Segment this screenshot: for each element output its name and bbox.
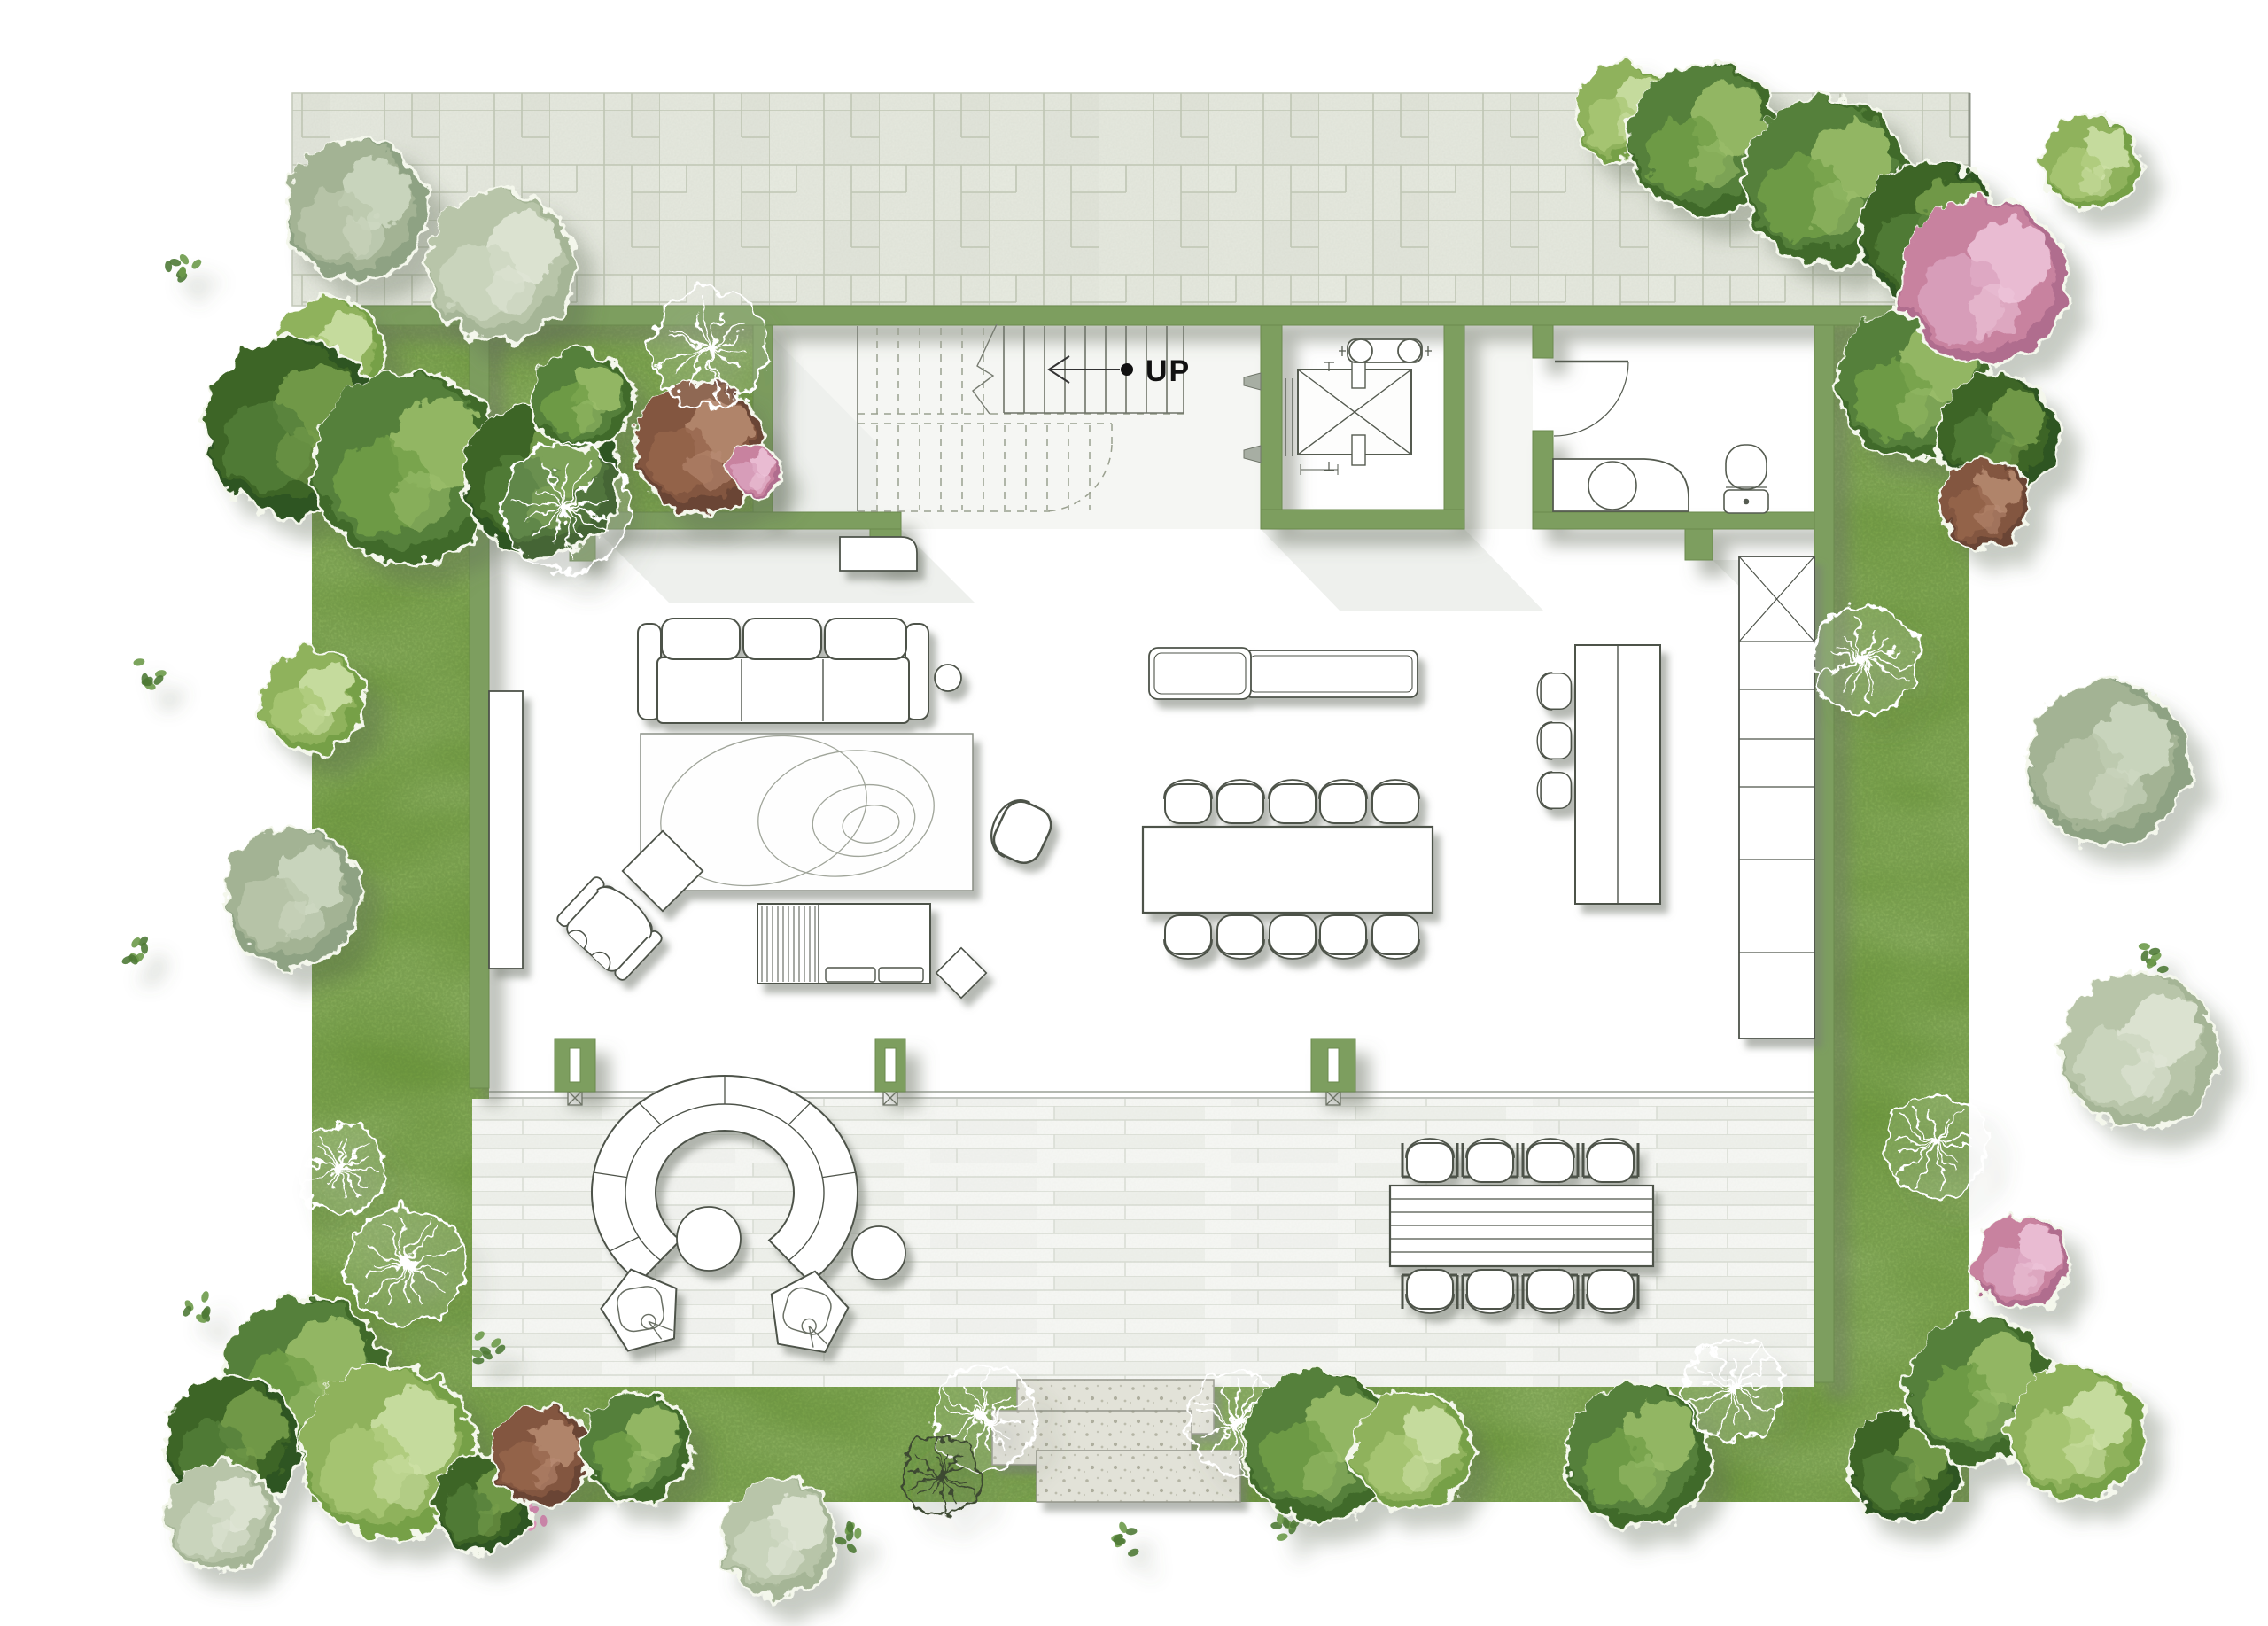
elevator-south-wall: [1261, 510, 1464, 529]
bathroom-west-wall: [1533, 325, 1553, 358]
leaf-sprig: [133, 657, 167, 691]
sofa-back-cushion: [743, 619, 821, 659]
leaf-sprig: [182, 1290, 213, 1325]
column-marker: [1326, 1091, 1340, 1105]
column-marker: [883, 1091, 897, 1105]
chair: [1216, 780, 1264, 823]
tree-canopy: [492, 1407, 589, 1505]
chair: [1269, 780, 1317, 823]
coffee-table: [852, 1226, 905, 1280]
window-bench: [489, 691, 523, 969]
east-wall: [1814, 325, 1834, 1382]
wall-stub: [1685, 529, 1713, 560]
site-plan-canvas: UP: [0, 0, 2268, 1626]
tree-canopy: [728, 445, 781, 498]
leaf-sprig: [2139, 943, 2170, 974]
tree-canopy: [2010, 1366, 2145, 1501]
tree-symbol: [650, 290, 767, 407]
chair: [1463, 1270, 1518, 1313]
sofa: [638, 619, 928, 723]
chair: [1216, 915, 1264, 959]
tree-canopy: [1940, 459, 2029, 548]
side-table: [935, 665, 961, 691]
sofa-back-cushion: [662, 619, 740, 659]
tree-symbol: [1884, 1093, 1987, 1196]
entry-bench: [840, 537, 917, 571]
courtyard-south-wall: [595, 512, 901, 529]
coffee-table: [677, 1207, 741, 1271]
sideboard: [1149, 648, 1417, 699]
tree-canopy: [223, 828, 361, 966]
floor-plan-page: UP: [0, 0, 2268, 1626]
column-marker: [568, 1091, 582, 1105]
outdoor-dining-table: [1390, 1186, 1653, 1266]
chair: [1319, 915, 1367, 959]
chair: [1537, 673, 1571, 710]
tree-canopy: [1974, 1215, 2070, 1311]
bathroom-south-wall: [1533, 512, 1814, 529]
tree-symbol: [347, 1207, 464, 1324]
chair: [1269, 915, 1317, 959]
toilet: [1724, 445, 1768, 513]
tall-cabinets: [1739, 556, 1814, 1039]
leaf-sprig: [165, 253, 204, 284]
dining-table: [1143, 827, 1433, 913]
chair: [1164, 915, 1212, 959]
sofa-back-cushion: [825, 619, 906, 659]
tree-canopy: [581, 1394, 691, 1504]
tree-canopy: [533, 351, 633, 450]
tree-canopy: [721, 1479, 838, 1596]
elevator-east-wall: [1444, 325, 1464, 529]
pier-slot: [570, 1048, 580, 1082]
chair: [1371, 780, 1419, 823]
tree-canopy: [427, 191, 576, 340]
dining-area: [1143, 648, 1433, 959]
chair: [1537, 722, 1571, 759]
chair: [1523, 1139, 1578, 1182]
chair: [1371, 915, 1419, 959]
pier-slot: [1328, 1048, 1339, 1082]
tree-canopy: [167, 1462, 276, 1572]
chair: [1523, 1270, 1578, 1313]
stair-elevator-wall: [1261, 325, 1282, 529]
chair: [1402, 1270, 1457, 1313]
pier-slot: [885, 1048, 896, 1082]
stairs-up-label: UP: [1146, 354, 1191, 388]
tree-symbol: [1685, 1340, 1784, 1439]
tree-canopy: [2027, 682, 2190, 845]
tree-canopy: [1900, 198, 2069, 366]
leaf-sprig: [1111, 1521, 1140, 1558]
chair: [1537, 772, 1571, 809]
elevator-motor: [1339, 339, 1432, 362]
tree-canopy: [285, 140, 427, 282]
corridor-floor: [1464, 325, 1533, 529]
console-drawer: [826, 968, 875, 982]
tree-canopy: [1353, 1391, 1473, 1512]
chair: [1319, 780, 1367, 823]
chair: [1583, 1270, 1638, 1313]
tree-symbol: [902, 1436, 980, 1514]
leaf-sprig: [120, 935, 150, 967]
chair: [1164, 780, 1212, 823]
vanity-counter: [1553, 459, 1689, 511]
chair: [1463, 1139, 1518, 1182]
tv-console: [757, 904, 930, 984]
chair: [1402, 1139, 1457, 1182]
guide-rail: [1352, 435, 1365, 465]
tree-canopy: [2062, 972, 2218, 1128]
bar-stools: [1537, 673, 1571, 809]
tree-symbol: [503, 443, 631, 571]
console-drawer: [879, 968, 923, 982]
arrow-start-dot: [1121, 363, 1133, 376]
tree-symbol: [297, 1124, 385, 1212]
tree-canopy: [260, 650, 363, 753]
tree-symbol: [1812, 607, 1918, 713]
kitchen-island: [1575, 645, 1660, 904]
tree-canopy: [2042, 115, 2140, 213]
chair: [1583, 1139, 1638, 1182]
sofa-seat: [657, 657, 909, 723]
